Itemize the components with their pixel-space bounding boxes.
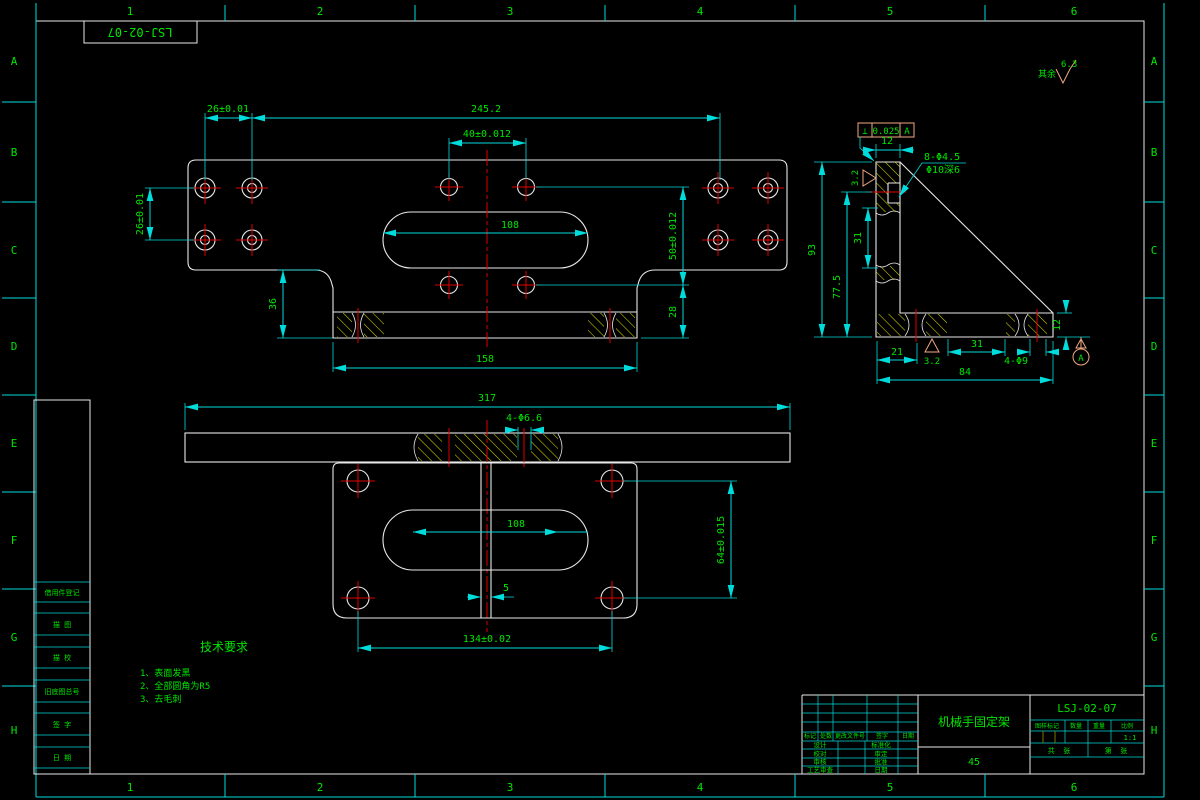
side-view: ⊥ 0.025 A 8-Φ4.5 Φ10深6 3.2 12 93 77.5 31 [807,123,1090,384]
plate-slot [383,510,588,570]
gdt-datum: A [904,127,910,137]
grid-col: 6 [1071,5,1078,18]
grid-ticks-top [225,5,985,21]
dim-26-top: 26±0.01 [207,104,249,115]
title-block: 标记 处数 更改文件号 签字 日期 设计 标准化 校对 审定 审核 批准 工艺审… [802,695,1144,774]
material: 45 [968,757,980,768]
roughness-left: 3.2 [851,170,876,186]
cad-canvas[interactable]: 1 2 3 4 5 6 1 2 3 4 5 6 A B C D E F G H … [0,0,1200,800]
grid-row: G [11,631,18,644]
grid-ticks-bottom [225,774,985,797]
dim-134: 134±0.02 [463,634,511,645]
tech-req-item: 1、表面发黑 [140,667,190,679]
dim-31-b: 31 [971,339,983,350]
holes-note: 8-Φ4.5 [924,152,960,163]
rev-header: 日期 [902,732,914,740]
info-header: 图样标记 [1035,722,1059,730]
signature-rows: 设计 标准化 校对 审定 审核 批准 工艺审查 日期 [807,740,891,774]
grid-row-labels: A B C D E F G H A B C D E F G H [11,55,1158,737]
datum-label: A [1078,354,1084,364]
sign-label: 批准 [875,757,889,766]
dim-84: 84 [959,367,971,378]
sign-label: 校对 [814,749,828,758]
sidebar-label: 签 字 [53,720,71,729]
dim-12-r: 12 [1052,319,1063,331]
gusset-edge [900,162,1053,313]
grid-row: A [1151,55,1158,68]
roughness-bottom: 3.2 [924,339,940,367]
grid-row: D [1151,340,1158,353]
frame-sidebar: 借用件登记 描 图 描 校 旧底图总号 签 字 日 期 [34,400,90,774]
surface-note-prefix: 其余 [1038,68,1056,80]
dim-108-top: 108 [501,220,519,231]
surface-note-value: 6.3 [1061,60,1077,70]
grid-row: E [1151,437,1158,450]
grid-col: 2 [317,781,324,794]
grid-row: B [1151,146,1158,159]
dim-40: 40±0.012 [463,129,511,140]
surface-roughness-note: 其余 6.3 [1038,60,1077,83]
hole-callout: 8-Φ4.5 Φ10深6 [899,152,966,197]
tech-req-title: 技术要求 [200,640,248,654]
technical-requirements: 技术要求 1、表面发黑 2、全部圆角为R5 3、去毛刺 [140,640,248,705]
rev-header: 签字 [876,732,888,740]
gdt-symbol: ⊥ [862,127,868,137]
dim-5: 5 [503,583,509,594]
rev-header: 标记 [804,732,816,740]
grid-row: E [11,437,18,450]
mirrored-title-box: LSJ-02-07 [84,21,197,43]
dim-12-top: 12 [881,136,893,147]
info-header: 比例 [1121,722,1133,730]
dim-93: 93 [807,244,818,256]
tech-req-item: 3、去毛刺 [140,693,181,705]
sheet-total: 共 张 [1048,746,1070,755]
roughness-value: 3.2 [851,170,861,186]
grid-col: 1 [127,5,134,18]
grid-row: B [11,146,18,159]
grid-ticks-left [2,102,36,686]
sidebar-label: 描 图 [53,620,71,629]
sign-label: 日期 [875,766,889,774]
grid-row: C [11,244,18,257]
roughness-icon [925,339,939,352]
part-name: 机械手固定架 [938,714,1010,729]
info-header: 重量 [1093,722,1105,730]
dim-245: 245.2 [471,104,501,115]
grid-col: 5 [887,5,894,18]
grid-col: 2 [317,5,324,18]
sign-label: 标准化 [871,740,891,749]
sidebar-label: 旧底图总号 [45,687,80,696]
grid-row: F [1151,534,1158,547]
dim-77-5: 77.5 [832,275,843,299]
mirrored-title-text: LSJ-02-07 [107,25,172,39]
grid-row: H [1151,724,1158,737]
grid-row: A [11,55,18,68]
drawing-number: LSJ-02-07 [1057,702,1117,715]
dim-28: 28 [668,306,679,318]
sign-label: 设计 [814,740,828,749]
dim-31: 31 [853,232,864,244]
side-view-outline [876,162,1053,337]
grid-ticks-right [1144,102,1164,686]
scale-value: 1:1 [1124,734,1137,742]
dim-108-bottom: 108 [507,519,525,530]
bottom-view: 317 4-Φ6.6 108 5 64±0.015 134±0.02 [185,393,790,652]
sidebar-label: 借用件登记 [45,588,80,597]
grid-column-labels: 1 2 3 4 5 6 1 2 3 4 5 6 [127,5,1078,794]
grid-row: F [11,534,18,547]
sidebar-label: 描 校 [53,653,71,662]
rev-header: 处数 [820,732,832,740]
cbore-note: Φ10深6 [926,164,960,176]
sign-label: 审定 [875,749,889,758]
grid-row: D [11,340,18,353]
center-slot [383,212,588,268]
dim-317: 317 [478,393,496,404]
grid-col: 5 [887,781,894,794]
roughness-icon [863,170,876,186]
datum-a: A [1073,337,1089,365]
dim-26-left: 26±0.01 [135,193,146,235]
grid-col: 6 [1071,781,1078,794]
tech-req-item: 2、全部圆角为R5 [140,680,210,692]
top-view: 26±0.01 245.2 40±0.012 26±0.01 36 108 50… [135,104,787,372]
sidebar-label: 日 期 [53,754,71,762]
dim-64: 64±0.015 [716,516,727,564]
info-header: 数量 [1070,722,1082,730]
dim-36: 36 [268,298,279,310]
rev-header: 更改文件号 [835,732,865,740]
grid-col: 3 [507,5,514,18]
holes-note-b: 4-Φ9 [1004,356,1028,367]
sign-label: 审核 [814,757,828,766]
grid-col: 4 [697,781,704,794]
counterbore-section [888,183,900,203]
plate-holes [341,464,629,615]
grid-row: G [1151,631,1158,644]
grid-col: 4 [697,5,704,18]
grid-row: C [1151,244,1158,257]
roughness-value: 3.2 [924,357,940,367]
dim-21: 21 [891,347,903,358]
grid-col: 3 [507,781,514,794]
sheet-number: 第 张 [1105,746,1127,755]
dim-158: 158 [476,354,494,365]
grid-col: 1 [127,781,134,794]
dim-50: 50±0.012 [668,212,679,260]
grid-row: H [11,724,18,737]
sign-label: 工艺审查 [807,765,834,774]
holes-note-66: 4-Φ6.6 [506,413,542,424]
plate-outline [333,463,637,618]
